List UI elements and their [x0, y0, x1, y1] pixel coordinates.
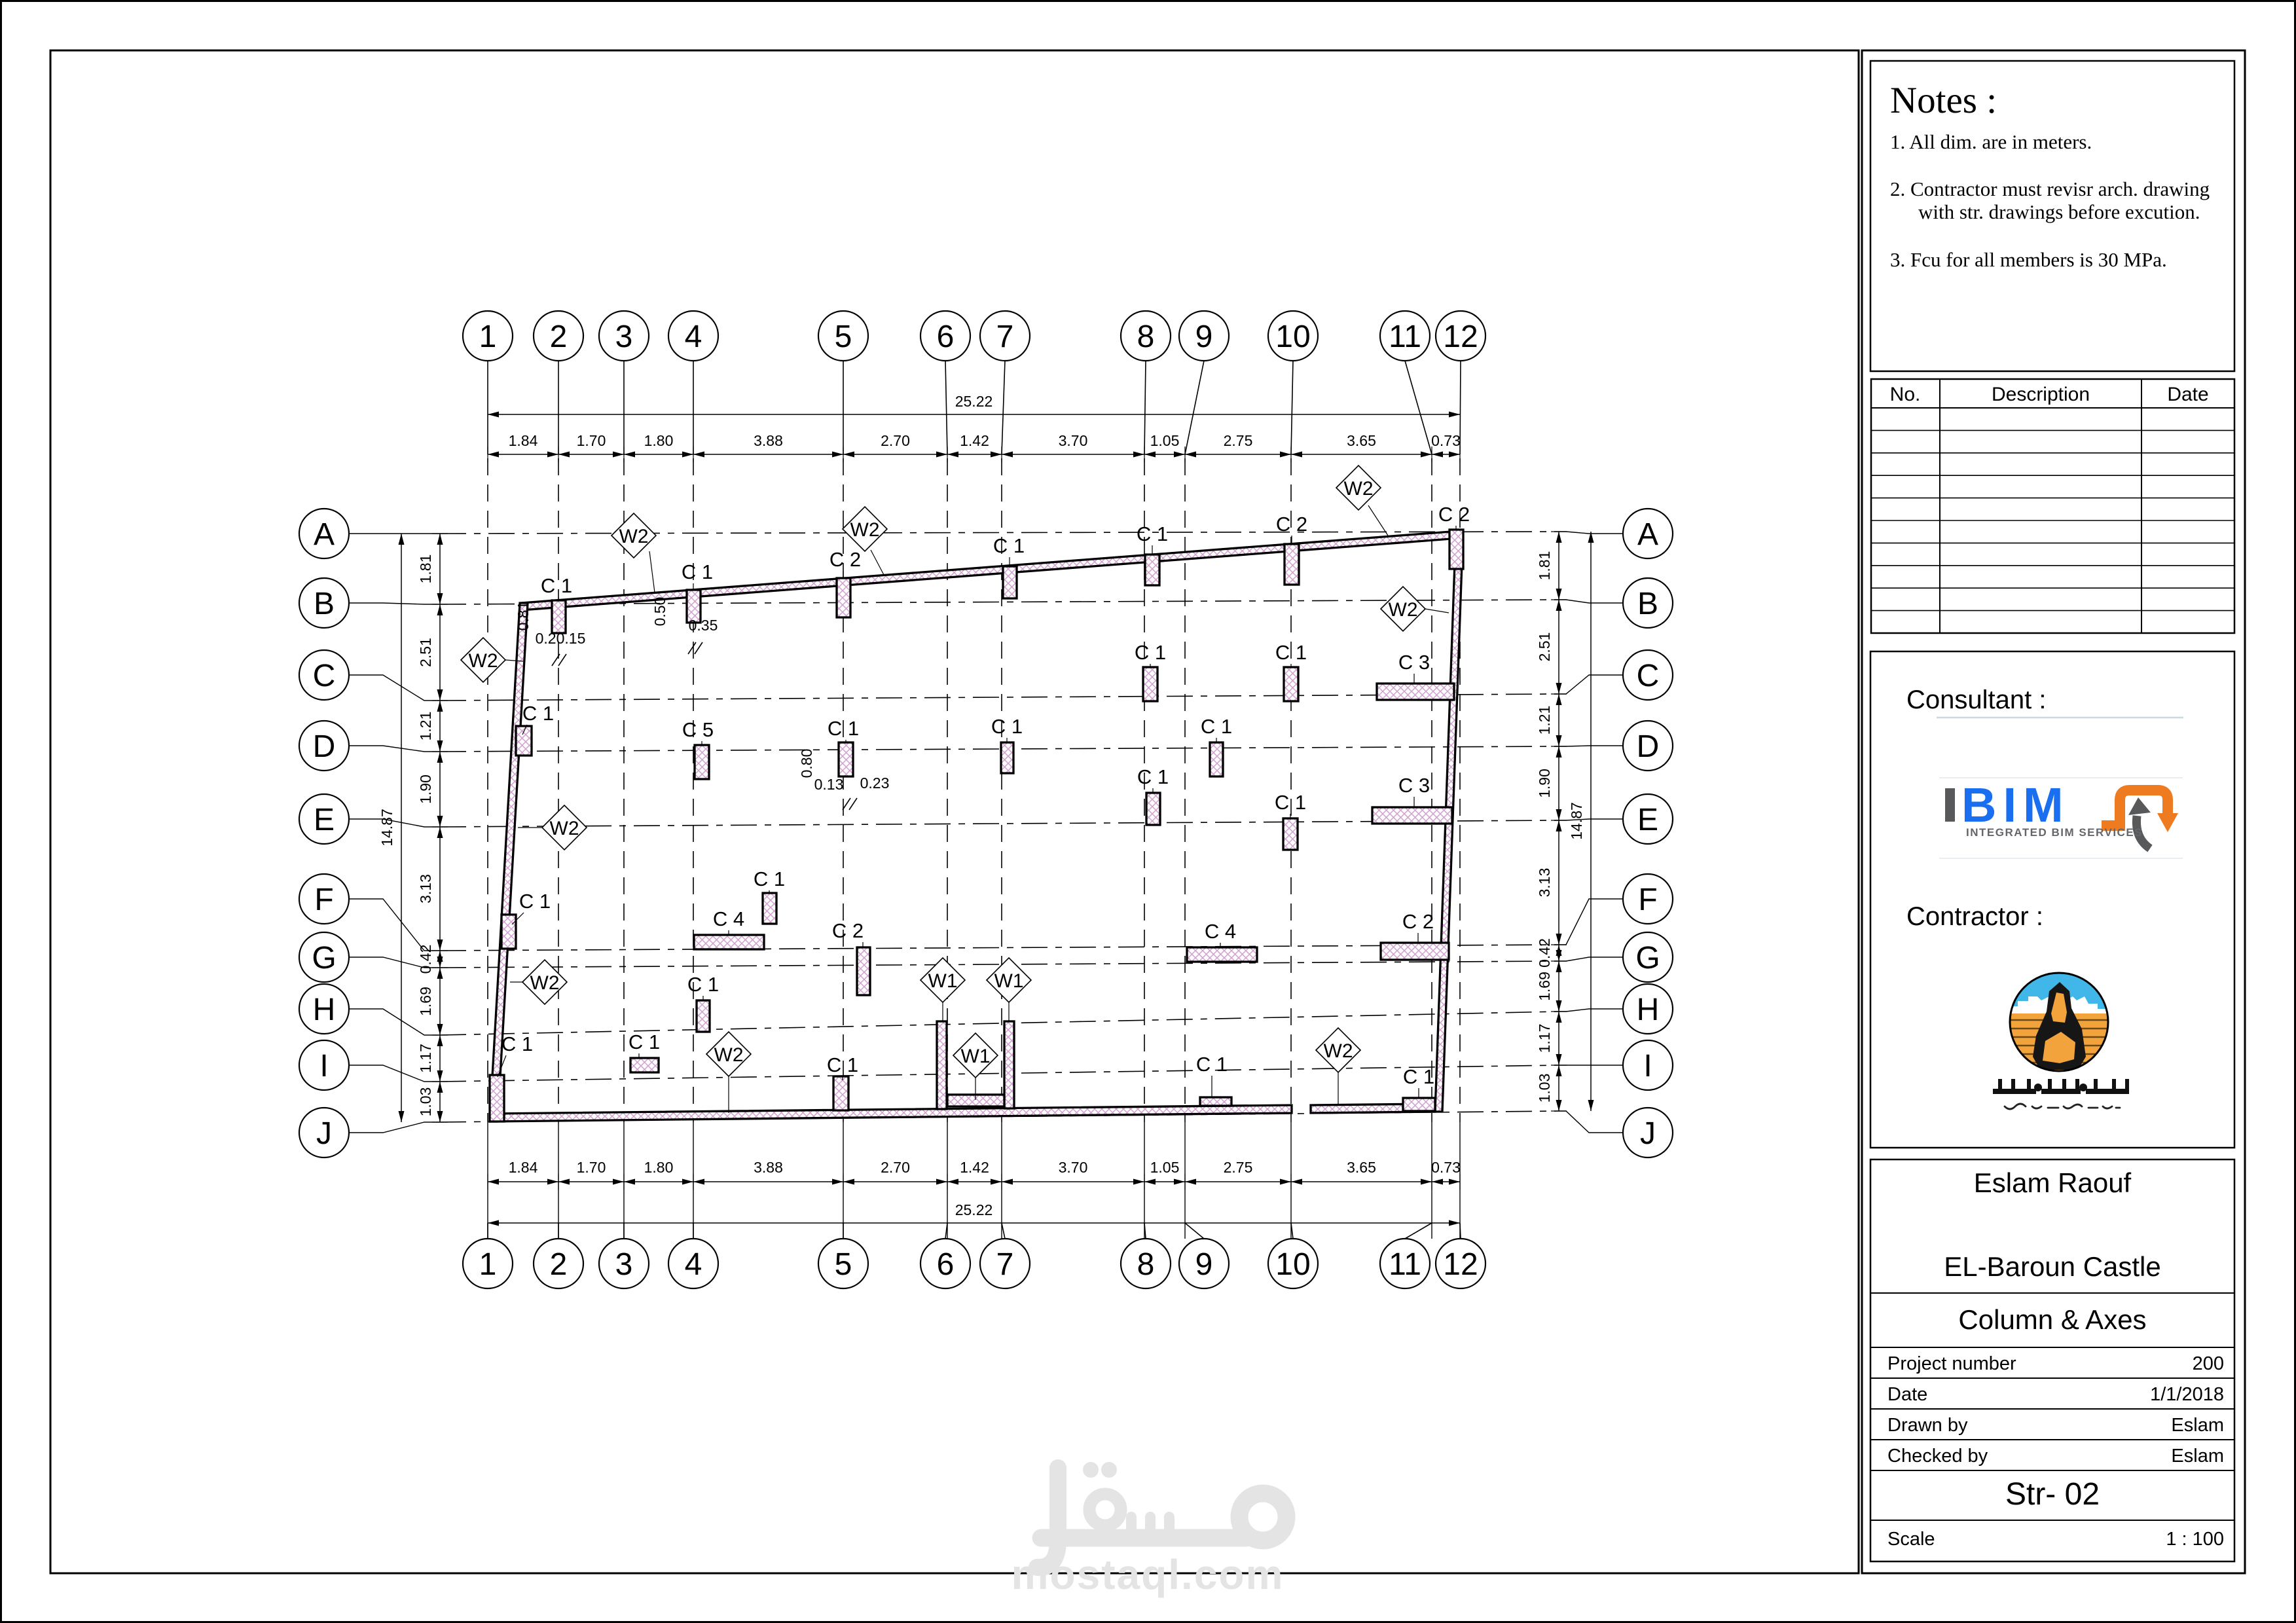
svg-text:C 1: C 1: [991, 715, 1023, 738]
svg-text:12: 12: [1443, 319, 1478, 354]
svg-text:1.42: 1.42: [960, 1159, 989, 1176]
svg-text:Date: Date: [1887, 1384, 1927, 1405]
svg-text:3.88: 3.88: [754, 432, 783, 449]
svg-text:7: 7: [996, 319, 1014, 354]
svg-text:1.03: 1.03: [1536, 1074, 1553, 1103]
svg-text:6: 6: [937, 319, 955, 354]
svg-text:1.90: 1.90: [1536, 769, 1553, 798]
svg-text:0.50: 0.50: [651, 597, 668, 627]
svg-text:mostaql.com: mostaql.com: [1011, 1551, 1285, 1598]
svg-text:0.13: 0.13: [814, 776, 844, 793]
svg-text:W2: W2: [1344, 478, 1374, 500]
svg-text:1.70: 1.70: [577, 432, 606, 449]
svg-text:9: 9: [1195, 319, 1213, 354]
svg-text:No.: No.: [1890, 384, 1921, 405]
svg-text:E: E: [314, 803, 335, 837]
svg-text:5: 5: [835, 1247, 852, 1282]
svg-text:Project number: Project number: [1887, 1353, 2016, 1374]
svg-text:Eslam: Eslam: [2171, 1446, 2224, 1467]
svg-text:1.05: 1.05: [1150, 1159, 1180, 1176]
svg-text:C 3: C 3: [1398, 774, 1430, 797]
svg-text:1.69: 1.69: [1536, 972, 1553, 1001]
svg-text:C 1: C 1: [629, 1030, 660, 1053]
svg-text:W2: W2: [530, 972, 560, 994]
svg-text:3.70: 3.70: [1059, 1159, 1088, 1176]
svg-text:3. Fcu for all members is 30 M: 3. Fcu for all members is 30 MPa.: [1890, 248, 2167, 271]
svg-text:2.70: 2.70: [881, 432, 910, 449]
svg-text:1.80: 1.80: [644, 432, 674, 449]
svg-text:14.87: 14.87: [378, 809, 395, 847]
svg-text:10: 10: [1275, 319, 1310, 354]
svg-text:W2: W2: [469, 650, 498, 672]
svg-text:C 1: C 1: [993, 534, 1025, 557]
svg-text:1.03: 1.03: [417, 1087, 434, 1117]
svg-text:11: 11: [1389, 319, 1421, 354]
svg-text:W2: W2: [850, 519, 880, 541]
svg-text:1: 1: [479, 1247, 497, 1282]
svg-text:C 1: C 1: [828, 717, 859, 740]
svg-text:C 1: C 1: [519, 890, 551, 913]
svg-text:G: G: [1635, 941, 1660, 976]
svg-text:3: 3: [615, 319, 633, 354]
svg-text:11: 11: [1389, 1247, 1421, 1282]
svg-text:C 1: C 1: [1137, 765, 1169, 788]
svg-text:1.70: 1.70: [577, 1159, 606, 1176]
svg-text:14.87: 14.87: [1568, 802, 1585, 840]
svg-text:2.75: 2.75: [1224, 432, 1253, 449]
svg-text:F: F: [1638, 883, 1657, 917]
svg-text:Eslam Raouf: Eslam Raouf: [1974, 1167, 2132, 1198]
svg-text:3.88: 3.88: [754, 1159, 783, 1176]
svg-text:4: 4: [685, 1247, 702, 1282]
svg-text:C 2: C 2: [832, 919, 864, 942]
svg-text:0.73: 0.73: [1431, 432, 1461, 449]
svg-text:1.17: 1.17: [417, 1044, 434, 1073]
svg-text:6: 6: [937, 1247, 955, 1282]
svg-text:H: H: [313, 993, 336, 1027]
svg-text:2. Contractor must revisr arch: 2. Contractor must revisr arch. drawing: [1890, 177, 2210, 200]
svg-text:1.21: 1.21: [1536, 706, 1553, 735]
svg-text:1.81: 1.81: [1536, 551, 1553, 581]
svg-text:2: 2: [550, 1247, 568, 1282]
svg-text:C 3: C 3: [1398, 651, 1430, 674]
svg-text:200: 200: [2193, 1353, 2224, 1374]
svg-text:8: 8: [1137, 319, 1155, 354]
svg-text:0.20.15: 0.20.15: [536, 630, 586, 647]
svg-text:0.73: 0.73: [1431, 1159, 1461, 1176]
svg-text:C 1: C 1: [541, 574, 572, 597]
svg-text:C 1: C 1: [1403, 1065, 1434, 1088]
svg-text:C 2: C 2: [1438, 503, 1470, 526]
svg-text:10: 10: [1275, 1247, 1310, 1282]
svg-text:3.70: 3.70: [1059, 432, 1088, 449]
svg-text:2.51: 2.51: [1536, 632, 1553, 662]
svg-text:H: H: [1637, 993, 1660, 1027]
svg-text:3.13: 3.13: [1536, 868, 1553, 898]
svg-text:1.84: 1.84: [509, 432, 538, 449]
svg-text:J: J: [316, 1116, 332, 1151]
svg-text:C 1: C 1: [754, 867, 785, 890]
svg-text:2: 2: [550, 319, 568, 354]
svg-text:C 1: C 1: [682, 560, 713, 583]
svg-text:1.17: 1.17: [1536, 1024, 1553, 1053]
svg-text:Contractor :: Contractor :: [1906, 902, 2043, 931]
svg-text:1: 1: [479, 319, 497, 354]
svg-text:1 : 100: 1 : 100: [2166, 1529, 2224, 1550]
svg-text:W2: W2: [1389, 599, 1418, 621]
svg-text:W1: W1: [928, 970, 958, 992]
svg-text:W2: W2: [1324, 1040, 1353, 1062]
svg-text:7: 7: [996, 1247, 1014, 1282]
svg-text:1/1/2018: 1/1/2018: [2150, 1384, 2224, 1405]
svg-text:3.65: 3.65: [1347, 1159, 1376, 1176]
svg-text:C 1: C 1: [522, 702, 554, 725]
svg-text:C 1: C 1: [827, 1053, 858, 1076]
svg-text:C: C: [313, 659, 336, 693]
svg-text:G: G: [312, 941, 336, 976]
svg-text:12: 12: [1443, 1247, 1478, 1282]
svg-text:0.42: 0.42: [1536, 938, 1553, 968]
svg-text:2.51: 2.51: [417, 638, 434, 667]
svg-text:0.23: 0.23: [860, 775, 890, 792]
svg-text:1.69: 1.69: [417, 987, 434, 1016]
svg-text:Drawn by: Drawn by: [1887, 1415, 1968, 1436]
svg-text:3.65: 3.65: [1347, 432, 1376, 449]
svg-text:1.81: 1.81: [417, 555, 434, 584]
svg-text:A: A: [1637, 517, 1658, 552]
svg-text:25.22: 25.22: [955, 1201, 993, 1218]
svg-text:4: 4: [685, 319, 702, 354]
svg-text:C 4: C 4: [713, 907, 744, 930]
svg-text:C 1: C 1: [1275, 791, 1306, 814]
svg-text:W2: W2: [619, 526, 649, 547]
svg-text:INTEGRATED BIM SERVICES: INTEGRATED BIM SERVICES: [1966, 826, 2143, 839]
svg-text:Scale: Scale: [1887, 1529, 1935, 1550]
svg-text:W2: W2: [550, 818, 579, 839]
svg-text:3.13: 3.13: [417, 874, 434, 903]
svg-text:W1: W1: [994, 970, 1024, 992]
svg-text:C 1: C 1: [1137, 522, 1168, 545]
svg-text:1.80: 1.80: [644, 1159, 674, 1176]
svg-text:E: E: [1637, 803, 1658, 837]
svg-text:C 4: C 4: [1205, 920, 1236, 943]
svg-text:Notes :: Notes :: [1890, 80, 1997, 121]
svg-text:B: B: [314, 587, 335, 621]
svg-text:9: 9: [1195, 1247, 1213, 1282]
svg-text:C 5: C 5: [682, 718, 714, 741]
svg-text:C 2: C 2: [1402, 910, 1434, 933]
svg-text:C 1: C 1: [1201, 715, 1232, 738]
svg-text:D: D: [1637, 729, 1660, 764]
svg-text:1.42: 1.42: [960, 432, 989, 449]
svg-text:2.75: 2.75: [1224, 1159, 1253, 1176]
svg-text:1.21: 1.21: [417, 712, 434, 741]
svg-text:0.80: 0.80: [798, 749, 815, 778]
svg-text:Column & Axes: Column & Axes: [1958, 1304, 2146, 1335]
svg-text:Consultant :: Consultant :: [1906, 685, 2046, 714]
svg-text:J: J: [1640, 1116, 1656, 1151]
svg-text:1. All dim. are in meters.: 1. All dim. are in meters.: [1890, 130, 2092, 153]
svg-text:C 1: C 1: [1196, 1053, 1228, 1076]
svg-text:W2: W2: [714, 1044, 744, 1066]
svg-text:1.90: 1.90: [417, 775, 434, 804]
svg-text:Eslam: Eslam: [2171, 1415, 2224, 1436]
svg-text:D: D: [313, 729, 336, 764]
svg-text:with str. drawings before excu: with str. drawings before excution.: [1918, 200, 2200, 223]
svg-text:A: A: [314, 517, 335, 552]
svg-text:I: I: [319, 1049, 328, 1084]
svg-text:B: B: [1637, 587, 1658, 621]
svg-text:C 1: C 1: [687, 973, 719, 996]
svg-text:W1: W1: [961, 1046, 991, 1067]
svg-text:EL-Baroun Castle: EL-Baroun Castle: [1944, 1251, 2161, 1282]
svg-text:1.84: 1.84: [509, 1159, 538, 1176]
svg-text:C 2: C 2: [829, 548, 861, 571]
svg-text:C 2: C 2: [1276, 513, 1307, 536]
svg-text:5: 5: [835, 319, 852, 354]
svg-text:Description: Description: [1992, 384, 2090, 405]
svg-text:C 1: C 1: [501, 1032, 533, 1055]
svg-text:8: 8: [1137, 1247, 1155, 1282]
svg-text:0.42: 0.42: [417, 945, 434, 974]
svg-text:0.81: 0.81: [515, 602, 532, 631]
svg-text:25.22: 25.22: [955, 393, 993, 410]
svg-text:Date: Date: [2167, 384, 2208, 405]
svg-text:C: C: [1637, 659, 1660, 693]
svg-text:BIM: BIM: [1961, 778, 2070, 832]
svg-text:F: F: [314, 883, 333, 917]
svg-text:2.70: 2.70: [881, 1159, 910, 1176]
svg-text:1.05: 1.05: [1150, 432, 1180, 449]
svg-text:C 1: C 1: [1275, 641, 1307, 664]
svg-text:I: I: [1643, 1049, 1652, 1084]
svg-text:0.35: 0.35: [689, 617, 718, 634]
svg-text:Str- 02: Str- 02: [2005, 1477, 2100, 1512]
svg-text:Checked by: Checked by: [1887, 1446, 1988, 1467]
svg-text:3: 3: [615, 1247, 633, 1282]
svg-text:C 1: C 1: [1135, 641, 1166, 664]
